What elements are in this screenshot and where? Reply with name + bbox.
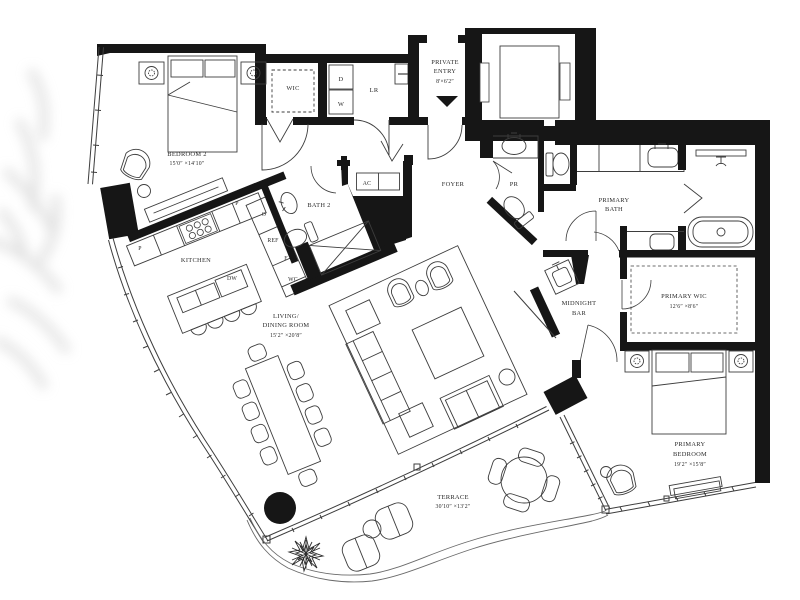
- svg-text:REF: REF: [267, 238, 279, 244]
- svg-text:TERRACE: TERRACE: [437, 494, 468, 501]
- svg-text:WIC: WIC: [286, 85, 299, 92]
- svg-text:15′0″ ×14′10″: 15′0″ ×14′10″: [170, 161, 205, 167]
- svg-text:KITCHEN: KITCHEN: [181, 257, 211, 264]
- svg-text:WC: WC: [288, 277, 298, 283]
- svg-text:F: F: [284, 256, 288, 262]
- svg-text:30′10″ ×13′2″: 30′10″ ×13′2″: [436, 504, 471, 510]
- svg-text:8'×6'2″: 8'×6'2″: [436, 79, 454, 85]
- svg-text:DINING ROOM: DINING ROOM: [263, 322, 310, 329]
- svg-text:P: P: [235, 201, 238, 207]
- svg-text:FOYER: FOYER: [442, 181, 465, 188]
- svg-text:MIDNIGHT: MIDNIGHT: [562, 300, 597, 307]
- svg-text:LIVING/: LIVING/: [273, 313, 299, 320]
- svg-text:15′2″ ×20′8″: 15′2″ ×20′8″: [270, 333, 302, 339]
- svg-text:12′6″ ×8′6″: 12′6″ ×8′6″: [670, 304, 699, 310]
- svg-text:PRIMARY: PRIMARY: [675, 441, 706, 448]
- svg-text:PRIVATE: PRIVATE: [431, 59, 459, 66]
- svg-text:LR: LR: [370, 87, 379, 94]
- svg-text:BEDROOM: BEDROOM: [673, 451, 707, 458]
- svg-text:ENTRY: ENTRY: [434, 68, 457, 75]
- svg-text:BEDROOM 2: BEDROOM 2: [167, 151, 206, 158]
- svg-text:PR: PR: [510, 181, 519, 188]
- svg-text:PRIMARY: PRIMARY: [599, 197, 630, 204]
- svg-text:P: P: [138, 246, 141, 252]
- svg-text:BATH 2: BATH 2: [307, 202, 330, 209]
- svg-text:DW: DW: [227, 276, 237, 282]
- svg-text:AC: AC: [363, 181, 371, 187]
- svg-text:19′2″ ×15′8″: 19′2″ ×15′8″: [674, 462, 706, 468]
- svg-text:BATH: BATH: [605, 206, 623, 213]
- svg-text:O: O: [262, 212, 266, 218]
- svg-text:BAR: BAR: [572, 310, 586, 317]
- svg-text:W: W: [338, 101, 345, 108]
- svg-text:PRIMARY WIC: PRIMARY WIC: [661, 293, 707, 300]
- svg-text:D: D: [339, 76, 344, 83]
